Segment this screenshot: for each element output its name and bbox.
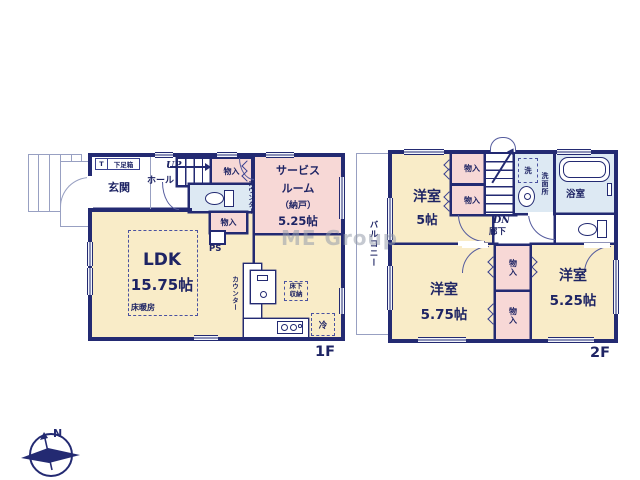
floor-plan-page: バルコニー 床下収納 冷 — [0, 0, 640, 480]
stairs-down-label: DN — [493, 216, 510, 227]
window — [266, 152, 294, 158]
service-room-name1: サービス — [276, 162, 320, 178]
balcony: バルコニー — [356, 153, 390, 335]
window — [217, 152, 237, 158]
laundry-label: 洗 — [524, 165, 532, 176]
bedroom-c-name: 洋室 — [559, 265, 587, 285]
window — [404, 149, 444, 155]
washroom-label: 洗面所 — [541, 172, 549, 196]
closet-label: 物入 — [508, 259, 519, 277]
bathroom-label: 浴室 — [566, 190, 585, 201]
toilet-icon-1f — [205, 190, 239, 207]
closet-label: 物入 — [508, 307, 519, 325]
closet-2f-b-label-wrap: 物入 — [452, 186, 492, 214]
window — [194, 335, 218, 341]
ldk-labels: LDK 15.75帖 — [118, 250, 206, 294]
bedroom-b-size: 5.75帖 — [421, 303, 468, 323]
bathtub-icon — [559, 157, 610, 182]
closet-label: 物入 — [464, 163, 480, 174]
shoe-box-label: 下足箱 — [114, 159, 134, 169]
closet-2f-a-label-wrap: 物入 — [452, 154, 492, 183]
closet-1f-mid-label-wrap: 物入 — [211, 213, 246, 232]
washbasin-icon — [518, 186, 535, 207]
closet-label: 物入 — [221, 217, 237, 228]
service-room-size: 5.25帖 — [278, 213, 318, 229]
bedroom-a-name: 洋室 — [413, 186, 441, 206]
ldk-size: 15.75帖 — [131, 274, 193, 295]
toilet-door-gap — [528, 212, 553, 216]
shoe-t-label: T — [99, 160, 103, 168]
kitchen-sink-unit — [251, 271, 275, 303]
pipe-space-label: PS — [209, 245, 221, 255]
window — [548, 337, 594, 343]
floor1-label: 1F — [315, 344, 335, 361]
underfloor-storage-box: 床下収納 — [284, 281, 308, 301]
balcony-label: バルコニー — [367, 220, 379, 268]
closet-label: 物入 — [464, 195, 480, 206]
entrance-door-gap — [87, 176, 93, 208]
bath-fixture — [607, 183, 612, 196]
stairs-up-arrowhead — [205, 163, 211, 171]
window — [339, 288, 345, 314]
bedroom-c-door-gap — [584, 243, 610, 248]
closet-2f-c-label-wrap: 物入 — [496, 246, 530, 290]
ldk-name: LDK — [143, 250, 181, 270]
bedroom-b-labels: 洋室 5.75帖 — [392, 280, 496, 322]
service-room-labels: サービス ルーム （納戸） 5.25帖 — [255, 163, 341, 227]
hall-label: ホール — [147, 176, 174, 186]
window — [418, 337, 466, 343]
bedroom-b-door-gap — [462, 243, 488, 248]
bedroom-b-name: 洋室 — [430, 279, 458, 299]
north-label: N — [53, 427, 62, 440]
underfloor-storage-label: 床下収納 — [289, 283, 304, 299]
pipe-space-box — [211, 232, 224, 243]
stove-icon — [277, 321, 303, 334]
fridge-label: 冷 — [319, 319, 328, 331]
fridge-box: 冷 — [311, 313, 335, 336]
window — [557, 149, 591, 155]
closet-label: 物入 — [224, 166, 240, 177]
corridor-label: 廊下 — [489, 228, 506, 238]
bedroom-c-size: 5.25帖 — [550, 289, 597, 309]
stairs-up-label: UP — [166, 161, 181, 172]
drain-icon — [260, 291, 267, 298]
faucet-icon — [257, 275, 268, 281]
toilet-icon-2f — [578, 220, 608, 238]
bedroom-c-labels: 洋室 5.25帖 — [532, 266, 614, 308]
window — [155, 152, 173, 158]
floor2-label: 2F — [590, 345, 610, 362]
service-room-name2: ルーム — [282, 180, 315, 196]
entrance-label: 玄関 — [108, 182, 130, 195]
floor-heating-label: 床暖房 — [131, 303, 155, 312]
laundry-box: 洗 — [518, 158, 538, 183]
service-room-name3: （納戸） — [280, 198, 316, 211]
counter-side-label: カウンター — [246, 180, 253, 215]
window — [87, 268, 93, 295]
kitchen-counter-label: カウンター — [230, 276, 237, 311]
bedroom-a-size: 5帖 — [416, 209, 437, 228]
closet-2f-d-label-wrap: 物入 — [496, 292, 530, 339]
compass-icon: N — [16, 424, 84, 480]
shoe-box: 下足箱 — [107, 158, 140, 170]
window — [87, 242, 93, 266]
